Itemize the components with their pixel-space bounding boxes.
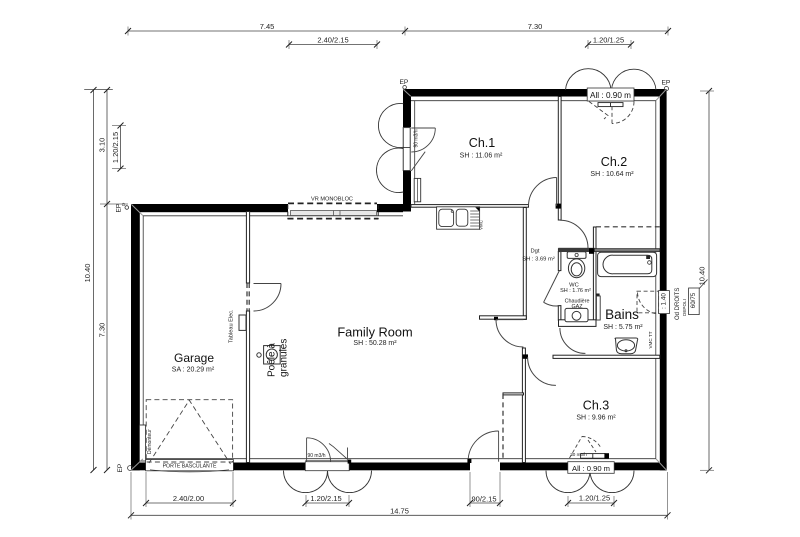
svg-text:granules: granules xyxy=(279,339,290,377)
svg-text:VMC: VMC xyxy=(479,220,484,230)
svg-text:7.45: 7.45 xyxy=(260,22,275,31)
svg-text:10.40: 10.40 xyxy=(83,264,92,283)
svg-text:: 1.40: : 1.40 xyxy=(661,293,668,309)
svg-text:10.40: 10.40 xyxy=(698,267,707,286)
svg-text:SH : 11.06 m²: SH : 11.06 m² xyxy=(460,153,503,160)
svg-text:EP: EP xyxy=(662,80,671,87)
svg-text:2.40/2.15: 2.40/2.15 xyxy=(317,36,348,45)
svg-text:Ch.2: Ch.2 xyxy=(601,155,627,169)
svg-text:SH : 3.69 m²: SH : 3.69 m² xyxy=(522,257,555,263)
svg-text:Od DROITS: Od DROITS xyxy=(675,288,681,320)
svg-text:DEPOLI: DEPOLI xyxy=(682,299,687,316)
svg-text:Ch.3: Ch.3 xyxy=(583,399,609,413)
svg-text:Tableau Elec.: Tableau Elec. xyxy=(229,309,235,343)
svg-text:EP: EP xyxy=(400,79,409,86)
svg-text:Dgt: Dgt xyxy=(530,249,539,255)
svg-text:Garage: Garage xyxy=(174,351,214,365)
svg-text:SH : 9.96 m²: SH : 9.96 m² xyxy=(576,415,616,422)
svg-text:PORTE BASCULANTE: PORTE BASCULANTE xyxy=(163,463,217,469)
svg-text:14.75: 14.75 xyxy=(390,506,409,515)
svg-text:90/2.15: 90/2.15 xyxy=(471,495,496,504)
svg-text:Bains: Bains xyxy=(605,307,639,322)
svg-text:SH : 1.76 m²: SH : 1.76 m² xyxy=(560,288,591,294)
svg-text:Démonteur: Démonteur xyxy=(147,429,153,454)
svg-text:EP: EP xyxy=(117,463,124,472)
svg-text:7.30: 7.30 xyxy=(528,22,543,31)
svg-text:All : 0.90 m: All : 0.90 m xyxy=(572,464,610,473)
svg-text:1.20/2.15: 1.20/2.15 xyxy=(310,494,341,503)
svg-text:90 m3/h: 90 m3/h xyxy=(307,453,325,459)
svg-text:90 m3/h: 90 m3/h xyxy=(414,129,420,147)
svg-text:1.20/1.25: 1.20/1.25 xyxy=(579,494,610,503)
svg-text:SH : 10.64 m²: SH : 10.64 m² xyxy=(590,171,634,178)
svg-text:SA : 20.29 m²: SA : 20.29 m² xyxy=(172,367,215,374)
svg-text:1.20/2.15: 1.20/2.15 xyxy=(111,132,120,163)
svg-text:GAZ: GAZ xyxy=(571,304,583,310)
svg-text:SH : 50.28 m²: SH : 50.28 m² xyxy=(353,340,397,347)
svg-text:30 m3/h: 30 m3/h xyxy=(570,452,587,457)
svg-text:Ch.1: Ch.1 xyxy=(469,136,495,150)
svg-text:Poêle à: Poêle à xyxy=(267,343,278,377)
svg-text:7.30: 7.30 xyxy=(98,323,107,338)
svg-text:VMC TT: VMC TT xyxy=(648,331,653,348)
svg-text:3.10: 3.10 xyxy=(98,138,107,153)
svg-text:Family Room: Family Room xyxy=(337,325,412,340)
svg-text:All : 0.90 m: All : 0.90 m xyxy=(590,91,631,100)
svg-text:60/75: 60/75 xyxy=(690,292,697,308)
svg-text:VR MONOBLOC: VR MONOBLOC xyxy=(311,197,353,203)
svg-text:1.20/1.25: 1.20/1.25 xyxy=(593,36,624,45)
svg-text:SH : 5.75 m²: SH : 5.75 m² xyxy=(603,324,643,331)
svg-text:2.40/2.00: 2.40/2.00 xyxy=(173,494,204,503)
